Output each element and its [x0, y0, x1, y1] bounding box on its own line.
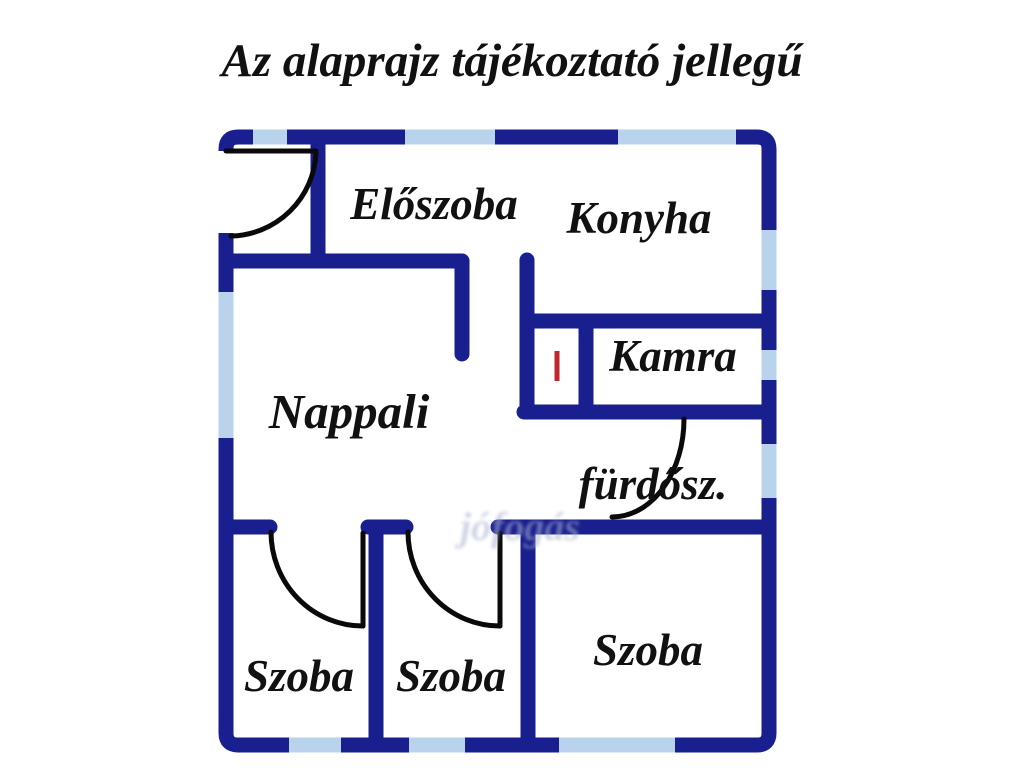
- floor-plan-drawing: Az alaprajz tájékoztató jellegű: [0, 0, 1024, 768]
- watermark-text: jófogás: [454, 504, 580, 549]
- room-label-kamra: Kamra: [608, 331, 737, 381]
- entrance-door-arc: [231, 153, 316, 236]
- floor-plan-page: Az alaprajz tájékoztató jellegű: [0, 0, 1024, 768]
- page-title: Az alaprajz tájékoztató jellegű: [218, 35, 804, 87]
- room-label-eloszoba: Előszoba: [349, 179, 518, 229]
- room-label-nappali: Nappali: [268, 384, 430, 439]
- room-label-szoba-left: Szoba: [244, 651, 354, 701]
- szoba-left-door-arc: [271, 532, 363, 626]
- room-label-szoba-right: Szoba: [593, 625, 703, 675]
- room-label-furdoszoba: fürdősz.: [579, 459, 728, 509]
- room-label-szoba-middle: Szoba: [396, 651, 506, 701]
- room-label-konyha: Konyha: [565, 193, 711, 243]
